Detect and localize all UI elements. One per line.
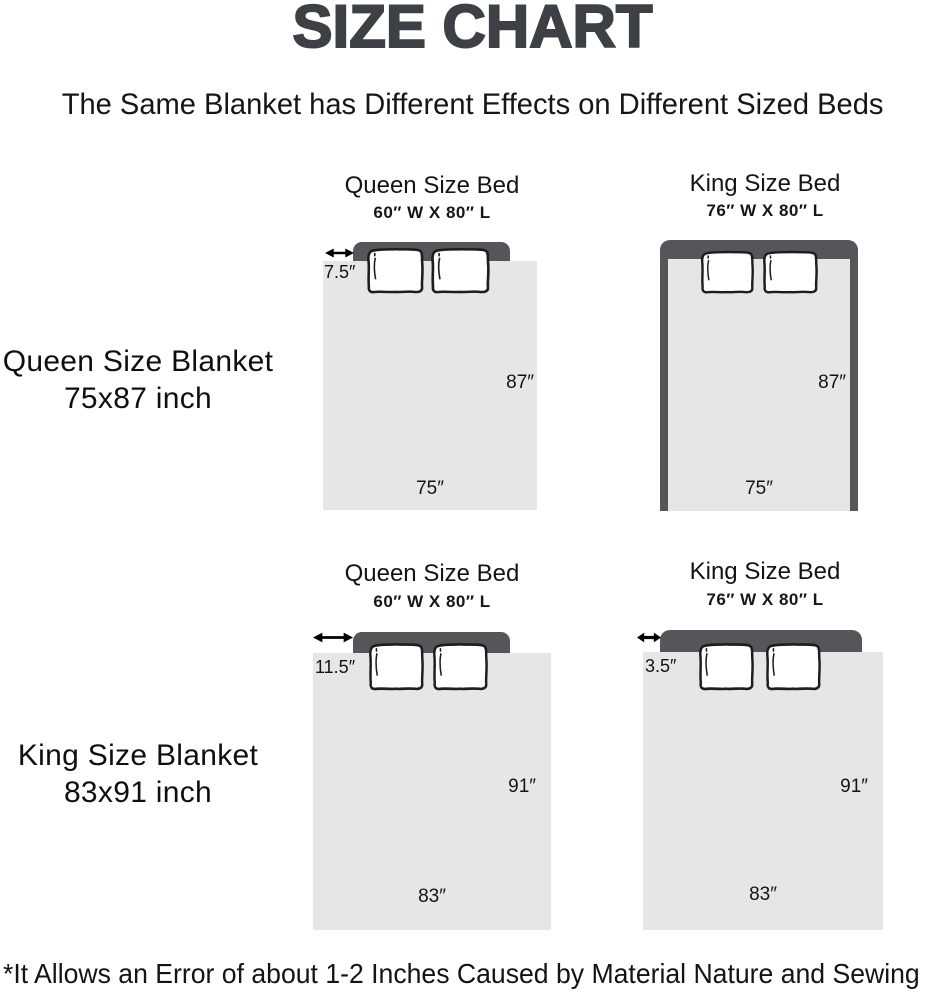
pillow-icon (365, 246, 426, 295)
bed-name-label: King Size Bed (665, 170, 865, 198)
size-chart-page: SIZE CHART The Same Blanket has Differen… (0, 0, 945, 1000)
blanket-length-label: 91″ (824, 776, 868, 798)
bed-name-label: Queen Size Bed (332, 560, 532, 588)
bed-dimensions-label: 60″ W X 80″ L (332, 203, 532, 223)
blanket-width-label: 75″ (668, 478, 850, 500)
overhang-arrow-icon (313, 631, 353, 644)
pillow-icon (367, 641, 426, 692)
blanket-width-label: 83″ (313, 886, 551, 908)
bed-name-label: Queen Size Bed (332, 172, 532, 200)
pillow-icon (764, 641, 823, 692)
bed-name-label: King Size Bed (665, 558, 865, 586)
blanket-size: 83x91 inch (0, 774, 276, 811)
footnote: *It Allows an Error of about 1-2 Inches … (3, 958, 945, 990)
blanket-width-label: 75″ (323, 478, 537, 500)
subtitle: The Same Blanket has Different Effects o… (0, 88, 945, 122)
blanket-width-label: 83″ (643, 884, 883, 906)
overhang-label: 3.5″ (645, 656, 676, 677)
overhang-label: 11.5″ (315, 657, 355, 678)
overhang-arrow-icon (637, 631, 661, 644)
blanket-length-label: 87″ (490, 372, 534, 394)
blanket-name: King Size Blanket (0, 737, 276, 774)
pillow-icon (431, 641, 490, 692)
blanket-length-label: 87″ (802, 372, 846, 394)
overhang-label: 7.5″ (324, 262, 355, 283)
blanket-size: 75x87 inch (0, 380, 276, 417)
pillow-icon (697, 641, 756, 692)
page-title: SIZE CHART (0, 0, 945, 61)
blanket-label-king: King Size Blanket 83x91 inch (0, 737, 276, 811)
bed-dimensions-label: 76″ W X 80″ L (665, 201, 865, 221)
bed-dimensions-label: 76″ W X 80″ L (665, 590, 865, 610)
bed-headboard (660, 630, 862, 652)
blanket-length-label: 91″ (492, 776, 536, 798)
overhang-arrow-icon (325, 247, 354, 259)
bed-dimensions-label: 60″ W X 80″ L (332, 592, 532, 612)
pillow-icon (761, 249, 820, 295)
blanket-name: Queen Size Blanket (0, 343, 276, 380)
blanket-label-queen: Queen Size Blanket 75x87 inch (0, 343, 276, 417)
pillow-icon (429, 246, 492, 295)
pillow-icon (699, 249, 756, 295)
